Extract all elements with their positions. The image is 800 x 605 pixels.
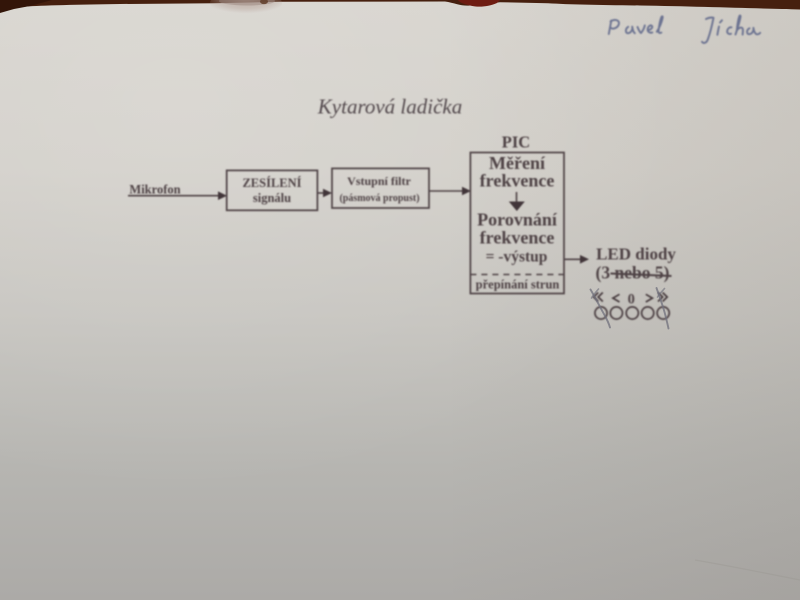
svg-text:frekvence: frekvence [480, 171, 555, 191]
svg-text:Kytarová ladička: Kytarová ladička [317, 95, 462, 119]
svg-text:(pásmová propust): (pásmová propust) [339, 193, 419, 204]
svg-text:přepínání strun: přepínání strun [476, 278, 560, 292]
svg-text:0: 0 [628, 292, 635, 308]
svg-text:Porovnání: Porovnání [477, 210, 558, 230]
svg-text:= -výstup: = -výstup [486, 249, 548, 266]
svg-text:Vstupní filtr: Vstupní filtr [347, 174, 411, 188]
svg-text:(3 nebo 5): (3 nebo 5) [596, 263, 670, 283]
svg-text:frekvence: frekvence [480, 228, 555, 248]
svg-text:signálu: signálu [253, 191, 291, 205]
svg-text:LED diody: LED diody [596, 245, 676, 264]
svg-text:Mikrofon: Mikrofon [129, 183, 180, 197]
svg-text:ZESÍLENÍ: ZESÍLENÍ [242, 176, 301, 190]
svg-text:PIC: PIC [502, 133, 530, 152]
